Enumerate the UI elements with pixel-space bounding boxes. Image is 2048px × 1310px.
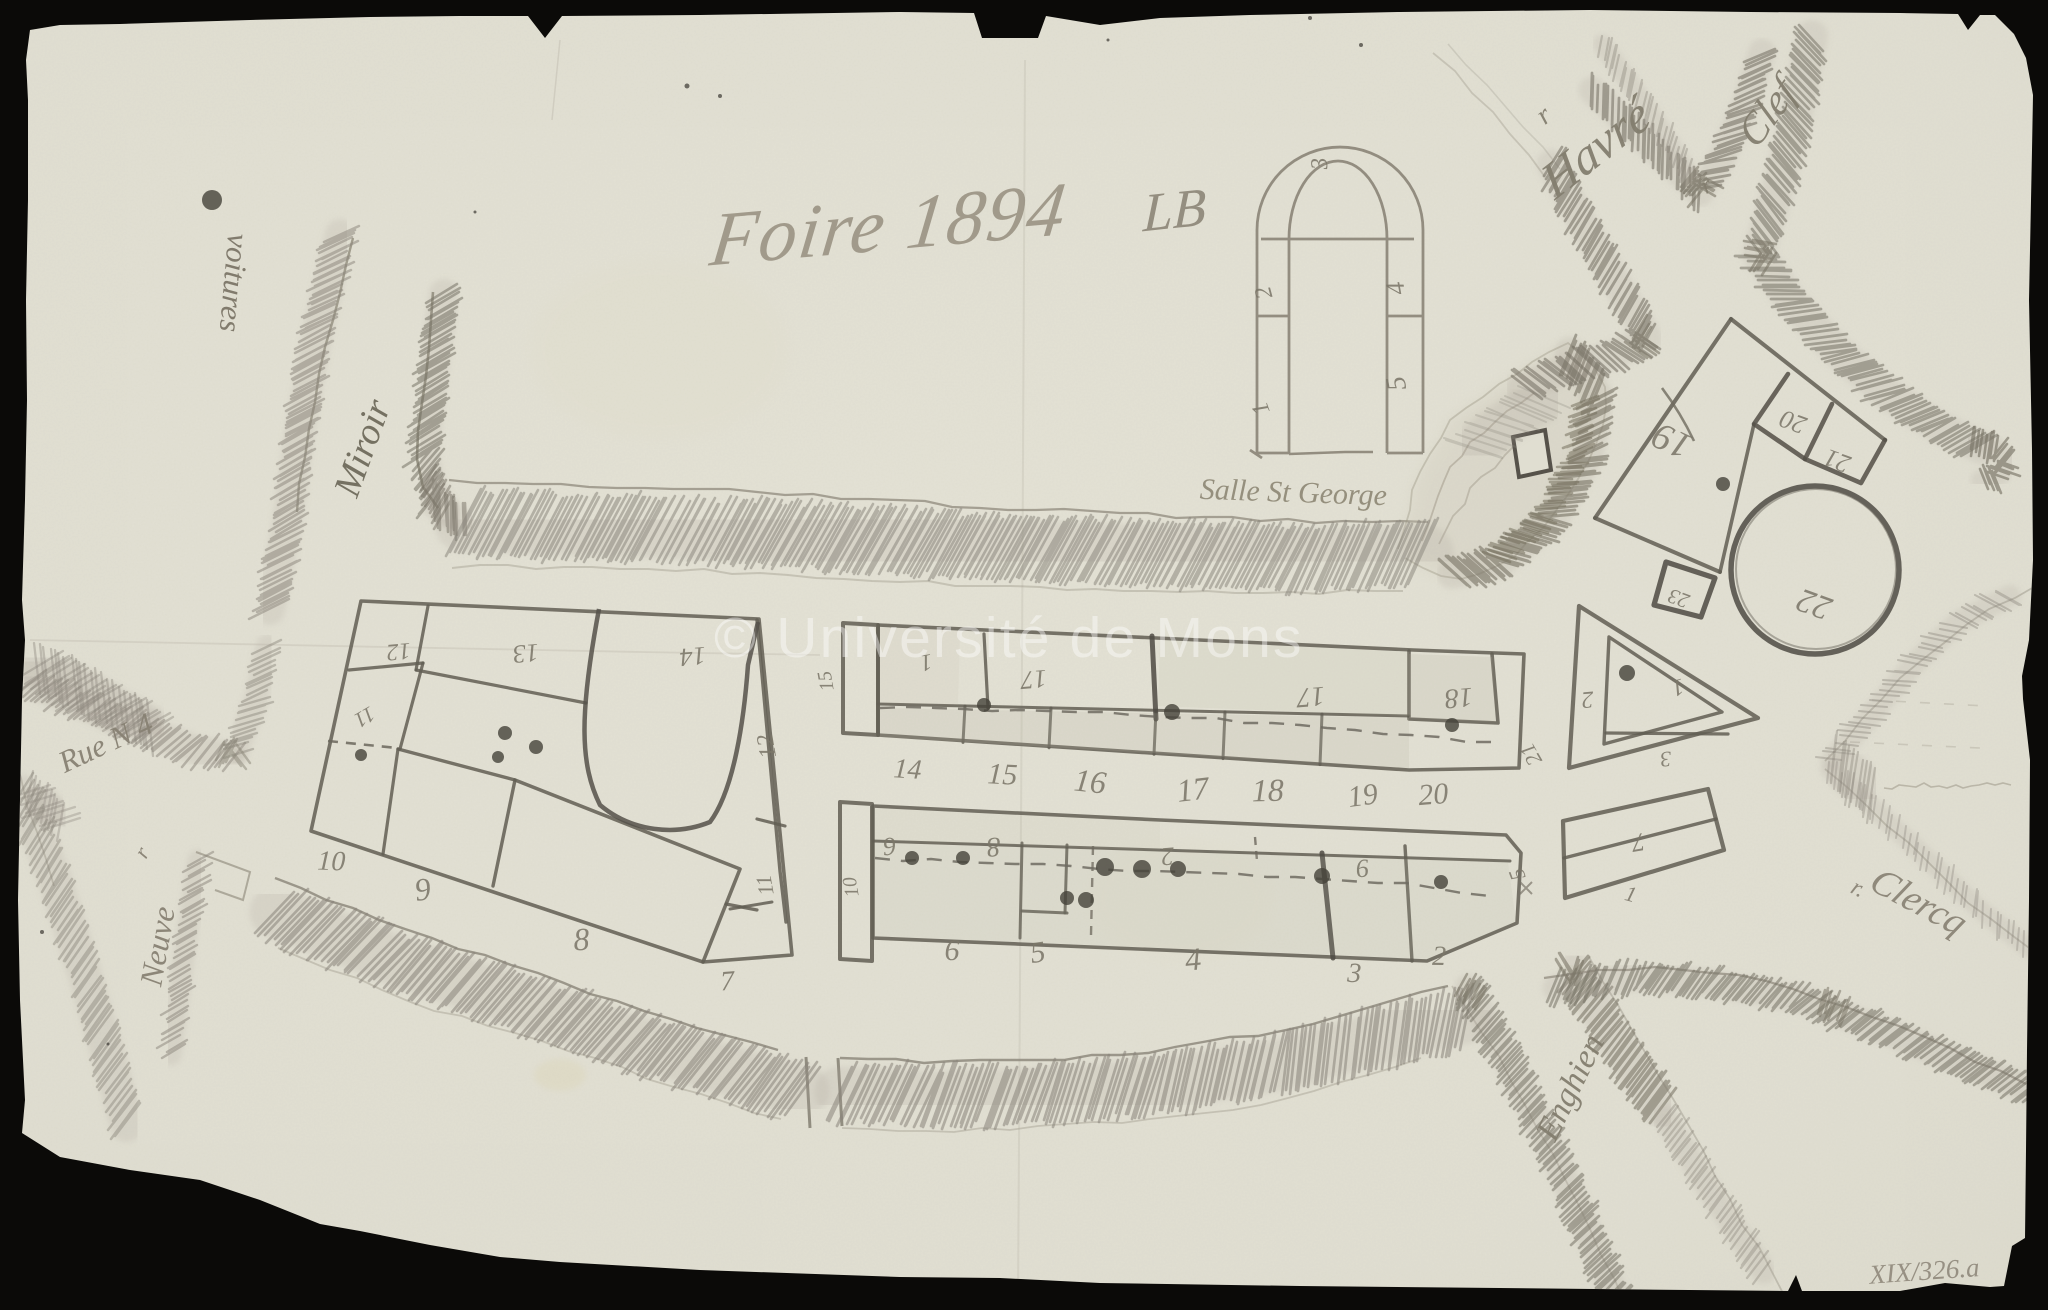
svg-text:2: 2 <box>1580 685 1594 712</box>
svg-text:8: 8 <box>985 830 1002 862</box>
svg-text:17: 17 <box>1175 769 1213 809</box>
svg-text:10: 10 <box>317 845 346 877</box>
svg-text:18: 18 <box>1251 772 1284 809</box>
svg-text:10: 10 <box>839 875 864 899</box>
svg-text:6: 6 <box>882 831 897 861</box>
svg-text:3: 3 <box>1346 958 1362 990</box>
svg-text:13: 13 <box>512 638 540 669</box>
svg-text:9: 9 <box>1355 853 1370 883</box>
svg-text:12: 12 <box>752 732 782 760</box>
svg-text:LB: LB <box>1141 177 1207 244</box>
svg-text:3: 3 <box>1659 746 1673 772</box>
svg-text:14: 14 <box>893 753 923 786</box>
svg-text:2: 2 <box>1432 941 1446 972</box>
svg-text:15: 15 <box>987 757 1019 791</box>
svg-text:19: 19 <box>1346 777 1380 814</box>
svg-text:14: 14 <box>679 641 707 672</box>
svg-text:15: 15 <box>814 669 839 693</box>
svg-text:20: 20 <box>1417 777 1449 812</box>
svg-text:6: 6 <box>944 934 959 967</box>
svg-text:3: 3 <box>1307 156 1334 171</box>
svg-text:4: 4 <box>1184 940 1203 977</box>
svg-text:8: 8 <box>572 921 590 958</box>
svg-text:2: 2 <box>1160 841 1175 871</box>
svg-text:Salle St George: Salle St George <box>1199 473 1387 513</box>
svg-text:17: 17 <box>1294 680 1326 713</box>
svg-text:16: 16 <box>1072 761 1108 800</box>
svg-text:11: 11 <box>751 873 779 897</box>
svg-text:12: 12 <box>386 637 412 665</box>
svg-text:© Université de Mons: © Université de Mons <box>714 606 1304 670</box>
svg-text:18: 18 <box>1443 681 1474 714</box>
